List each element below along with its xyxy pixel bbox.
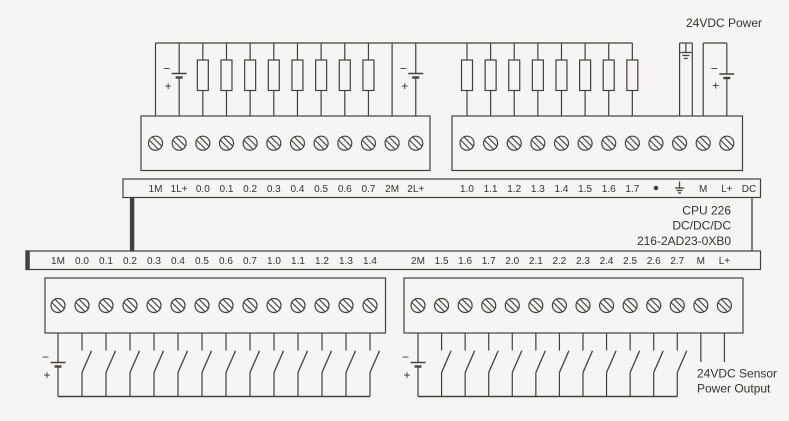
terminal-label-1.3: 1.3 (339, 256, 353, 267)
switch-blade (630, 351, 640, 373)
switch-blade (536, 351, 546, 373)
screw-terminal (600, 299, 614, 313)
switch-blade (274, 351, 284, 373)
cpu-type-label: DC/DC/DC (672, 219, 731, 233)
load-resistor (509, 60, 520, 91)
load-resistor (221, 60, 232, 91)
battery-plus-label: + (165, 79, 172, 93)
screw-terminal (219, 136, 233, 150)
terminal-label-0.5: 0.5 (195, 256, 209, 267)
screw-terminal (717, 299, 731, 313)
screw-terminal (338, 136, 352, 150)
load-resistor (197, 60, 208, 91)
screw-terminal (411, 299, 425, 313)
screw-terminal (409, 136, 423, 150)
terminal-label-0.1: 0.1 (220, 184, 234, 195)
battery-minus-label: − (42, 350, 49, 364)
screw-terminal (99, 299, 113, 313)
switch-blade (370, 351, 380, 373)
terminal-label-1.1: 1.1 (291, 256, 305, 267)
switch-blade (583, 351, 593, 373)
screw-terminal (507, 136, 521, 150)
terminal-label-1.0: 1.0 (460, 184, 474, 195)
terminal-label-0.0: 0.0 (75, 256, 89, 267)
load-resistor (580, 60, 591, 91)
switch-blade (346, 351, 356, 373)
terminal-label-0.3: 0.3 (267, 184, 281, 195)
screw-terminal (484, 136, 498, 150)
terminal-label-1.6: 1.6 (458, 256, 472, 267)
sensor-power-label-line2: Power Output (697, 382, 771, 396)
terminal-label-1.3: 1.3 (531, 184, 545, 195)
switch-blade (465, 351, 475, 373)
terminal-label-1.1: 1.1 (484, 184, 498, 195)
switch-blade (298, 351, 308, 373)
load-resistor (268, 60, 279, 91)
screw-terminal (602, 136, 616, 150)
battery-minus-label: − (711, 62, 718, 76)
load-resistor (532, 60, 543, 91)
terminal-label-2.3: 2.3 (576, 256, 590, 267)
switch-blade (512, 351, 522, 373)
cpu-order-number: 216-2AD23-0XB0 (637, 234, 731, 248)
terminal-label-0.7: 0.7 (361, 184, 375, 195)
screw-terminal (623, 299, 637, 313)
screw-terminal (267, 299, 281, 313)
terminal-label-1.4: 1.4 (363, 256, 377, 267)
load-resistor (462, 60, 473, 91)
cpu-body-edge-left (131, 198, 134, 252)
terminal-label-1.0: 1.0 (267, 256, 281, 267)
screw-terminal (649, 136, 663, 150)
terminal-label-0.3: 0.3 (147, 256, 161, 267)
terminal-label-1.5: 1.5 (435, 256, 449, 267)
battery-minus-label: − (400, 62, 407, 76)
screw-terminal (673, 136, 687, 150)
terminal-label-2.2: 2.2 (552, 256, 566, 267)
switch-blade (250, 351, 260, 373)
load-resistor (556, 60, 567, 91)
terminal-label-0.0: 0.0 (196, 184, 210, 195)
sensor-power-label-line1: 24VDC Sensor (697, 367, 777, 381)
terminal-label-2L+: 2L+ (407, 184, 424, 195)
switch-blade (178, 351, 188, 373)
terminal-label-0.4: 0.4 (171, 256, 185, 267)
screw-terminal (361, 136, 375, 150)
screw-terminal (647, 299, 661, 313)
switch-blade (130, 351, 140, 373)
terminal-block-bottom-right (404, 278, 743, 333)
screw-terminal (267, 136, 281, 150)
load-resistor (603, 60, 614, 91)
switch-blade (202, 351, 212, 373)
load-resistor (339, 60, 350, 91)
screw-terminal (460, 136, 474, 150)
screw-terminal (196, 136, 210, 150)
terminal-label-L+: L+ (721, 184, 733, 195)
switch-blade (677, 351, 687, 373)
terminal-label-0.2: 0.2 (123, 256, 137, 267)
screw-terminal (482, 299, 496, 313)
battery-minus-label: − (402, 350, 409, 364)
battery-plus-label: + (712, 79, 719, 93)
terminal-label-2.6: 2.6 (647, 256, 661, 267)
screw-terminal (147, 299, 161, 313)
screw-terminal (720, 136, 734, 150)
screw-terminal (458, 299, 472, 313)
screw-terminal (51, 299, 65, 313)
screw-terminal (529, 299, 543, 313)
switch-blade (226, 351, 236, 373)
power-supply-label: 24VDC Power (686, 16, 762, 30)
battery-plus-label: + (403, 368, 410, 382)
screw-terminal (291, 299, 305, 313)
screw-terminal (149, 136, 163, 150)
terminal-label-2M: 2M (385, 184, 399, 195)
screw-terminal (505, 299, 519, 313)
screw-terminal (531, 136, 545, 150)
screw-terminal (123, 299, 137, 313)
screw-terminal (314, 136, 328, 150)
battery-plus-label: + (43, 368, 50, 382)
terminal-label-0.7: 0.7 (243, 256, 257, 267)
screw-terminal (696, 136, 710, 150)
screw-terminal (363, 299, 377, 313)
switch-blade (607, 351, 617, 373)
terminal-block-bottom-left (45, 278, 386, 333)
switch-blade (154, 351, 164, 373)
load-resistor (316, 60, 327, 91)
screw-terminal (195, 299, 209, 313)
screw-terminal (385, 136, 399, 150)
load-resistor (485, 60, 496, 91)
wiring-diagram-canvas: −+−+−+24VDC Power1M1L+0.00.10.20.30.40.5… (0, 0, 789, 421)
terminal-label-0.2: 0.2 (243, 184, 257, 195)
screw-terminal (219, 299, 233, 313)
screw-terminal (576, 299, 590, 313)
terminal-label-0.6: 0.6 (338, 184, 352, 195)
screw-terminal (172, 136, 186, 150)
screw-terminal (578, 136, 592, 150)
terminal-label-2.4: 2.4 (600, 256, 614, 267)
terminal-label-2.0: 2.0 (505, 256, 519, 267)
terminal-label-1.5: 1.5 (578, 184, 592, 195)
terminal-label-M: M (697, 256, 705, 267)
switch-blade (106, 351, 116, 373)
screw-terminal (243, 299, 257, 313)
plc-wiring-diagram: −+−+−+24VDC Power1M1L+0.00.10.20.30.40.5… (0, 0, 789, 421)
screw-terminal (552, 299, 566, 313)
screw-terminal (339, 299, 353, 313)
switch-blade (654, 351, 664, 373)
terminal-label-0.4: 0.4 (291, 184, 305, 195)
screw-terminal (290, 136, 304, 150)
screw-terminal (75, 299, 89, 313)
screw-terminal (315, 299, 329, 313)
battery-minus-label: − (163, 62, 170, 76)
terminal-label-0.5: 0.5 (314, 184, 328, 195)
terminal-label-L+: L+ (719, 256, 731, 267)
switch-blade (442, 351, 452, 373)
terminal-label-DC: DC (742, 184, 756, 195)
terminal-label-1L+: 1L+ (171, 184, 188, 195)
switch-blade (82, 351, 92, 373)
cpu-model-label: CPU 226 (682, 204, 731, 218)
screw-terminal (694, 299, 708, 313)
screw-terminal (554, 136, 568, 150)
dot-symbol (654, 186, 659, 191)
terminal-label-1.7: 1.7 (625, 184, 639, 195)
terminal-label-2.5: 2.5 (623, 256, 637, 267)
terminal-label-1.2: 1.2 (507, 184, 521, 195)
load-resistor (245, 60, 256, 91)
screw-terminal (243, 136, 257, 150)
screw-terminal (625, 136, 639, 150)
load-resistor (627, 60, 638, 91)
terminal-label-2M: 2M (411, 256, 425, 267)
terminal-label-2.1: 2.1 (529, 256, 543, 267)
switch-blade (489, 351, 499, 373)
terminal-label-0.1: 0.1 (99, 256, 113, 267)
terminal-block-top-left (141, 116, 430, 171)
switch-blade (322, 351, 332, 373)
terminal-label-1M: 1M (149, 184, 163, 195)
battery-plus-label: + (401, 79, 408, 93)
screw-terminal (670, 299, 684, 313)
terminal-label-M: M (699, 184, 707, 195)
load-resistor (363, 60, 374, 91)
screw-terminal (435, 299, 449, 313)
terminal-label-1.4: 1.4 (555, 184, 569, 195)
switch-blade (559, 351, 569, 373)
terminal-label-1M: 1M (51, 256, 65, 267)
terminal-label-1.6: 1.6 (602, 184, 616, 195)
terminal-label-0.6: 0.6 (219, 256, 233, 267)
input-strip-thick-edge (26, 251, 29, 270)
terminal-label-1.7: 1.7 (482, 256, 496, 267)
terminal-block-top-right (452, 116, 743, 171)
terminal-label-2.7: 2.7 (670, 256, 684, 267)
terminal-label-1.2: 1.2 (315, 256, 329, 267)
load-resistor (292, 60, 303, 91)
screw-terminal (171, 299, 185, 313)
